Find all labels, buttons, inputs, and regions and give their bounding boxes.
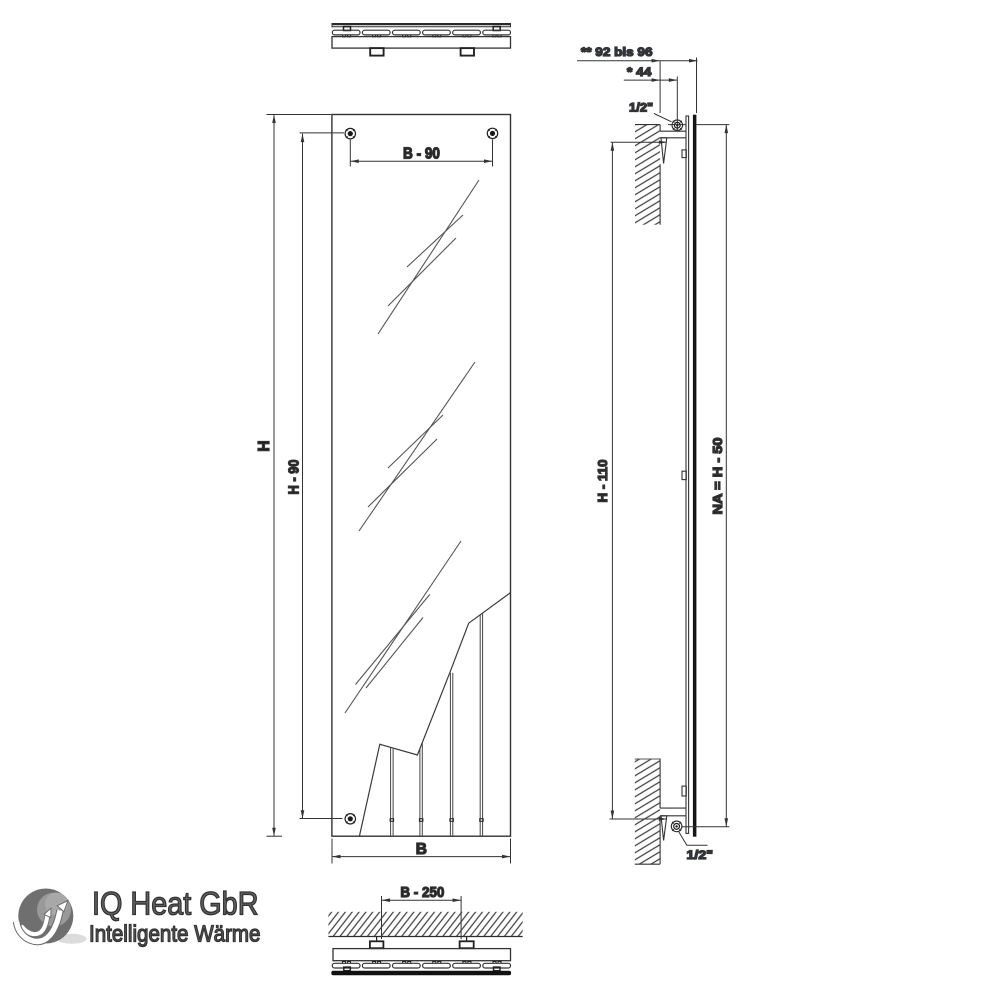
svg-text:H - 90: H - 90: [286, 460, 303, 495]
svg-text:** 92 bis 96: ** 92 bis 96: [581, 45, 653, 59]
svg-text:IQ Heat GbR: IQ Heat GbR: [92, 886, 259, 922]
svg-text:H - 110: H - 110: [595, 460, 610, 503]
svg-text:* 44: * 44: [627, 65, 651, 79]
svg-text:1/2": 1/2": [687, 848, 714, 862]
svg-text:B - 90: B - 90: [403, 145, 440, 162]
svg-text:B - 250: B - 250: [400, 884, 444, 901]
svg-text:H: H: [256, 440, 273, 451]
svg-text:NA = H - 50: NA = H - 50: [710, 438, 725, 515]
svg-text:Intelligente Wärme: Intelligente Wärme: [89, 921, 261, 947]
svg-text:B: B: [416, 841, 427, 858]
svg-text:1/2": 1/2": [629, 101, 653, 115]
